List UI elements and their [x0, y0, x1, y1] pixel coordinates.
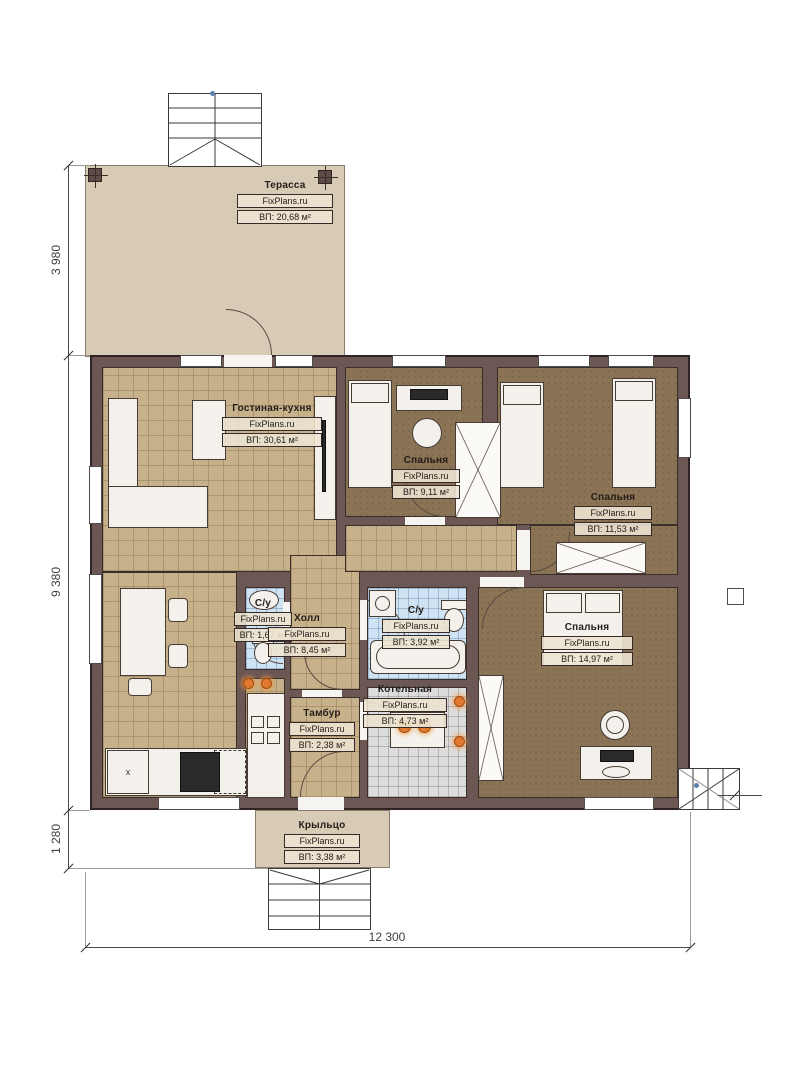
brand-watermark: FixPlans.ru: [268, 627, 346, 641]
room-label-hall: Холл FixPlans.ru ВП: 8,45 м²: [268, 613, 346, 657]
brand-watermark: FixPlans.ru: [284, 834, 360, 848]
dining-table: [120, 588, 166, 676]
room-label-wc-main: С/у FixPlans.ru ВП: 3,92 м²: [382, 605, 450, 649]
window: [392, 355, 446, 367]
room-label-bedroom1: Спальня FixPlans.ru ВП: 9,11 м²: [392, 455, 460, 499]
room-name: С/у: [234, 598, 292, 610]
room-name: Терасса: [237, 180, 333, 192]
dim-extension: [68, 165, 90, 166]
room-area: ВП: 3,38 м²: [284, 850, 360, 864]
stove-cabinet: [247, 693, 285, 798]
door-opening-tambour: [302, 690, 342, 697]
dim-extension: [68, 868, 268, 869]
dishwasher-marker: x: [126, 767, 131, 777]
window: [584, 797, 654, 810]
dim-extension: [68, 810, 90, 811]
dishwasher: x: [107, 750, 149, 794]
wall-lamp: [261, 678, 272, 689]
room-name: Крыльцо: [284, 820, 360, 832]
side-stairs: [678, 768, 740, 810]
room-area: ВП: 11,53 м²: [574, 522, 652, 536]
room-area: ВП: 2,38 м²: [289, 738, 355, 752]
floor-plan: x: [0, 0, 792, 1080]
room-area: ВП: 20,68 м²: [237, 210, 333, 224]
dining-chair: [168, 598, 188, 622]
room-area: ВП: 14,97 м²: [541, 652, 633, 666]
entrance-door-opening: [298, 797, 344, 810]
pillow: [585, 593, 620, 613]
brand-watermark: FixPlans.ru: [392, 469, 460, 483]
dining-chair: [128, 678, 152, 696]
entry-stairs-top: [168, 93, 262, 167]
room-name: С/у: [382, 605, 450, 617]
monitor: [600, 750, 634, 762]
marker-square: [727, 588, 744, 605]
side-stair-dim-line: [718, 795, 762, 796]
pillow: [503, 385, 541, 405]
room-label-bedroom3: Спальня FixPlans.ru ВП: 14,97 м²: [541, 622, 633, 666]
wardrobe: [455, 422, 501, 518]
dining-chair: [168, 644, 188, 668]
room-area: ВП: 9,11 м²: [392, 485, 460, 499]
pillow: [546, 593, 582, 613]
sofa-seat: [108, 486, 208, 528]
door-opening-bedroom3: [480, 577, 524, 587]
stair-node-dot: [210, 91, 215, 96]
dim-label-9380: 9 380: [49, 552, 63, 612]
wall-lamp: [454, 736, 465, 747]
wardrobe: [556, 542, 646, 574]
room-area: ВП: 4,73 м²: [363, 714, 447, 728]
room-label-boiler: Котельная FixPlans.ru ВП: 4,73 м²: [363, 684, 447, 728]
stove-burner: [267, 732, 280, 744]
room-label-porch: Крыльцо FixPlans.ru ВП: 3,38 м²: [284, 820, 360, 864]
dim-line-left: [68, 165, 69, 868]
brand-watermark: FixPlans.ru: [382, 619, 450, 633]
pillow: [615, 381, 653, 401]
room-name: Спальня: [574, 492, 652, 504]
desk-chair: [602, 766, 630, 778]
brand-watermark: FixPlans.ru: [574, 506, 652, 520]
coffee-table: [192, 400, 226, 460]
terrace-door-opening: [224, 355, 272, 367]
room-area: ВП: 30,61 м²: [222, 433, 322, 447]
window: [608, 355, 654, 367]
brand-watermark: FixPlans.ru: [541, 636, 633, 650]
plant-pot-inner: [606, 716, 624, 734]
wall-lamp: [243, 678, 254, 689]
monitor: [410, 389, 448, 400]
tv-screen: [322, 420, 326, 492]
dim-extension: [690, 812, 691, 947]
door-opening-wc-main: [360, 600, 367, 640]
brand-watermark: FixPlans.ru: [222, 417, 322, 431]
door-opening-bedroom1: [405, 517, 445, 525]
dim-extension: [68, 355, 90, 356]
dim-label-3980: 3 980: [49, 230, 63, 290]
window: [89, 466, 102, 524]
dim-extension: [85, 872, 86, 947]
stove-burner: [267, 716, 280, 728]
room-area: ВП: 8,45 м²: [268, 643, 346, 657]
brand-watermark: FixPlans.ru: [237, 194, 333, 208]
floor-corridor: [345, 525, 517, 572]
window: [275, 355, 313, 367]
window: [538, 355, 590, 367]
room-name: Спальня: [392, 455, 460, 467]
room-label-tambour: Тамбур FixPlans.ru ВП: 2,38 м²: [289, 708, 355, 752]
room-name: Спальня: [541, 622, 633, 634]
kitchen-sink: [180, 752, 220, 792]
window: [180, 355, 222, 367]
room-name: Холл: [268, 613, 346, 625]
brand-watermark: FixPlans.ru: [363, 698, 447, 712]
room-name: Тамбур: [289, 708, 355, 720]
room-area: ВП: 3,92 м²: [382, 635, 450, 649]
desk-chair: [412, 418, 442, 448]
wardrobe: [478, 675, 504, 781]
wall-lamp: [454, 696, 465, 707]
dim-label-12300: 12 300: [352, 930, 422, 944]
dim-line-bottom: [85, 947, 690, 948]
window: [678, 398, 691, 458]
door-opening-bedroom2: [517, 530, 530, 570]
dim-label-1280: 1 280: [49, 809, 63, 869]
window: [158, 797, 240, 810]
column-marker: [88, 168, 102, 182]
room-label-living: Гостиная-кухня FixPlans.ru ВП: 30,61 м²: [222, 403, 322, 447]
room-label-terrace: Терасса FixPlans.ru ВП: 20,68 м²: [237, 180, 333, 224]
brand-watermark: FixPlans.ru: [289, 722, 355, 736]
room-name: Гостиная-кухня: [222, 403, 322, 415]
pillow: [351, 383, 389, 403]
porch-stairs: [268, 868, 371, 930]
stove-burner: [251, 732, 264, 744]
stove-burner: [251, 716, 264, 728]
stair-node-dot: [694, 783, 699, 788]
window: [89, 574, 102, 664]
room-label-bedroom2: Спальня FixPlans.ru ВП: 11,53 м²: [574, 492, 652, 536]
room-name: Котельная: [363, 684, 447, 696]
